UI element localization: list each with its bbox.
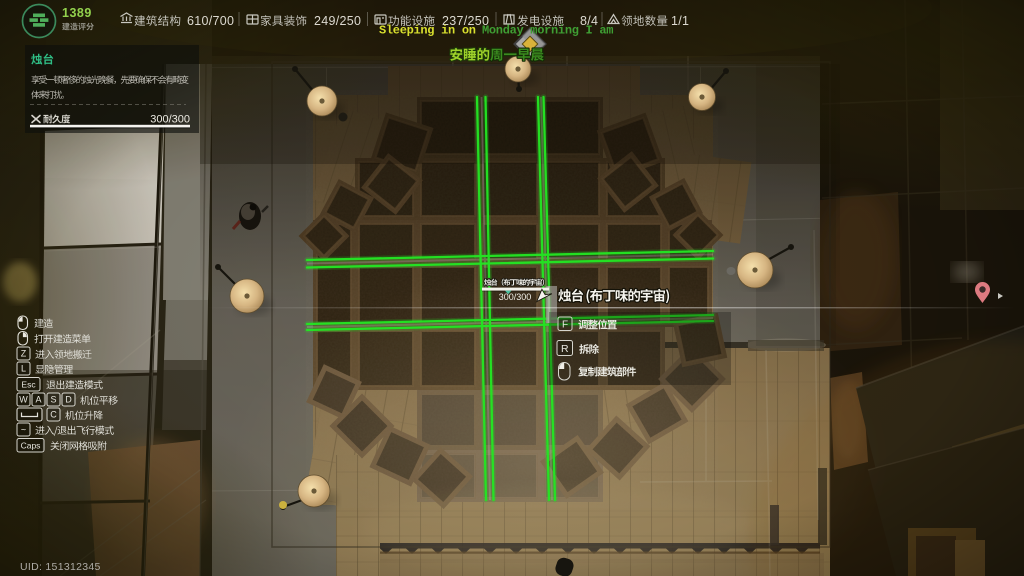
svg-text:1/1: 1/1 (671, 14, 689, 28)
svg-text:300/300: 300/300 (150, 114, 190, 126)
svg-text:Monday morning I am: Monday morning I am (482, 24, 613, 38)
svg-text:Esc: Esc (21, 379, 36, 389)
svg-text:249/250: 249/250 (314, 14, 361, 28)
svg-text:A: A (35, 395, 41, 405)
svg-text:Sleeping in on: Sleeping in on (379, 24, 476, 38)
svg-text:L: L (21, 364, 26, 374)
svg-text:Z: Z (21, 349, 27, 359)
svg-text:UID: 151312345: UID: 151312345 (20, 561, 101, 573)
svg-text:1389: 1389 (62, 6, 92, 20)
svg-text:~: ~ (21, 425, 26, 435)
svg-text:S: S (50, 395, 56, 405)
svg-text:C: C (50, 410, 57, 420)
svg-text:W: W (19, 395, 28, 405)
svg-text:D: D (65, 395, 72, 405)
svg-text:300/300: 300/300 (499, 292, 532, 302)
svg-text:Caps: Caps (21, 440, 41, 450)
svg-text:F: F (562, 319, 568, 330)
svg-text:R: R (561, 343, 569, 355)
svg-text:610/700: 610/700 (187, 14, 234, 28)
